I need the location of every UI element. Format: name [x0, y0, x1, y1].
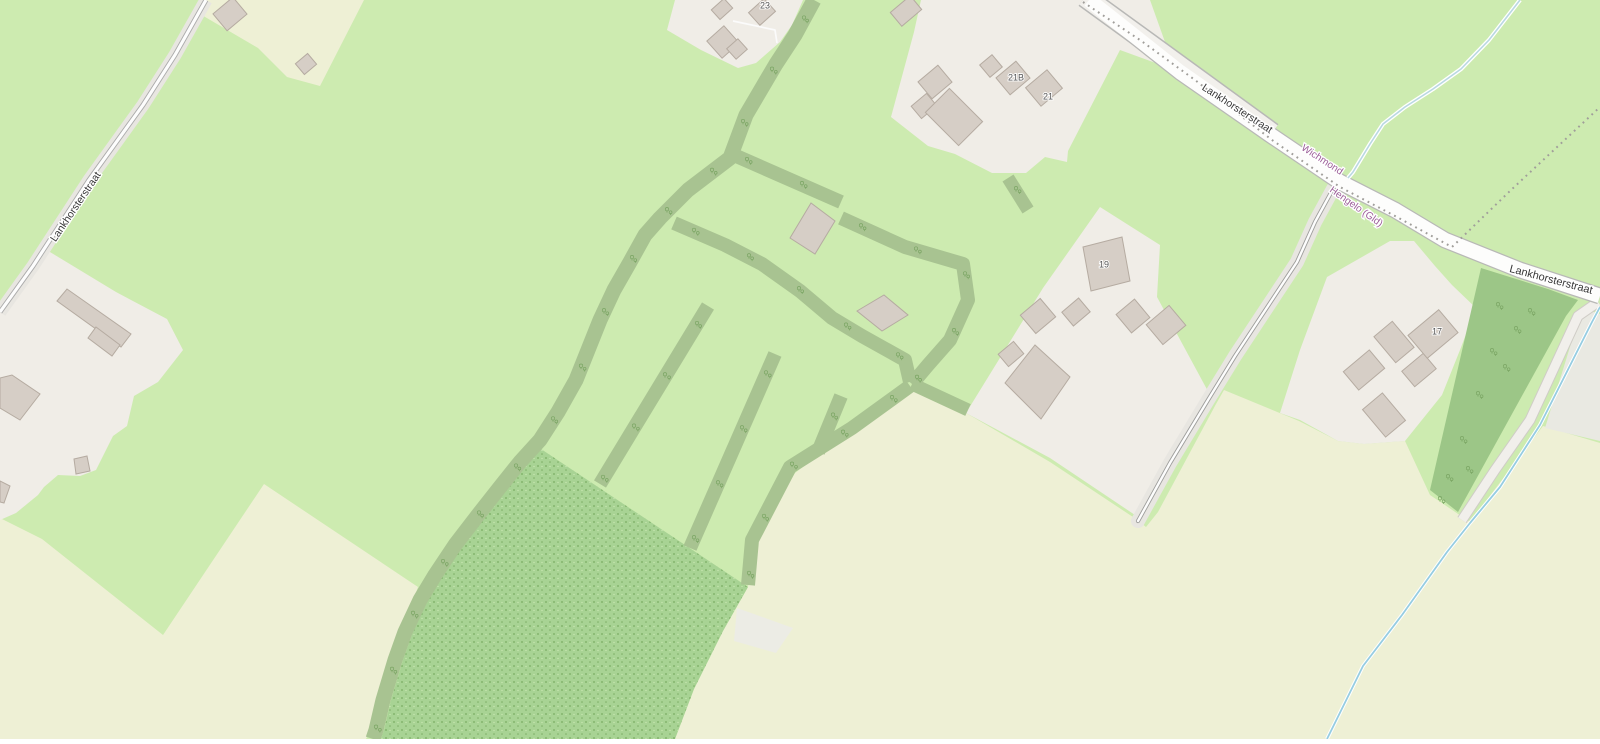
- svg-text:21B: 21B: [1008, 72, 1024, 82]
- svg-text:19: 19: [1099, 259, 1109, 269]
- svg-text:17: 17: [1432, 326, 1442, 336]
- svg-text:23: 23: [760, 0, 770, 10]
- svg-text:21: 21: [1043, 91, 1053, 101]
